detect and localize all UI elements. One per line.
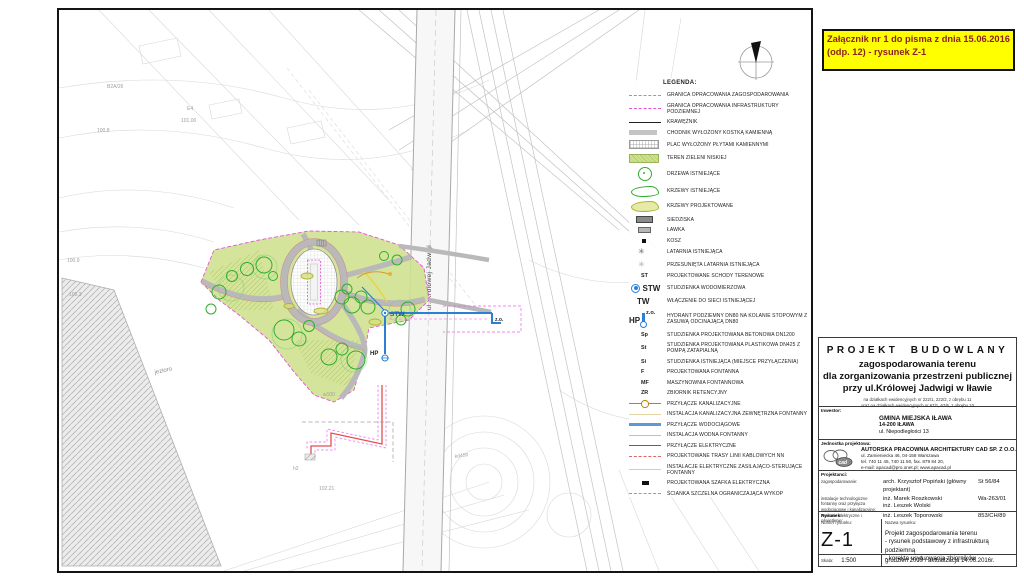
concrete-well-code: Sp	[629, 332, 667, 338]
legend-item: STPROJEKTOWANE SCHODY TERENOWE	[629, 273, 811, 279]
scale-value: 1:500	[841, 558, 856, 564]
legend-item: INSTALACJA KANALIZACYJNA ZEWNĘTRZNA FONT…	[629, 411, 811, 417]
designer-license: St 56/84	[978, 479, 1014, 495]
fountain-code: F	[629, 369, 667, 375]
boundary-infrastructure-line-icon	[629, 108, 667, 109]
bench-icon	[629, 227, 667, 233]
svg-text:102.21: 102.21	[319, 486, 335, 492]
project-title-1: zagospodarowania terenu	[819, 359, 1016, 370]
designers-label: Projektanci:	[819, 471, 1016, 478]
legend-item: INSTALACJE ELEKTRYCZNE ZASILAJĄCO-STERUJ…	[629, 464, 811, 476]
legend-item: FPROJEKTOWANA FONTANNA	[629, 369, 811, 375]
lake-label: jezioro	[153, 366, 173, 376]
moved-lamp-icon	[629, 261, 667, 269]
water-meter-well-icon: STW	[629, 284, 667, 293]
drawing-number: Z-1	[821, 529, 879, 552]
machine-room-code: MF	[629, 380, 667, 386]
legend-item: KOSZ	[629, 238, 811, 244]
zo-map-label: z.o.	[495, 317, 504, 323]
legend-item: PROJEKTOWANA SZAFKA ELEKTRYCZNA	[629, 480, 811, 486]
legend-item: KRAWĘŻNIK	[629, 119, 811, 125]
design-office-email: e-mail: apacad@pro.onet.pl; www.apacad.p…	[861, 465, 1016, 471]
legend-item: StSTUDZIENKA PROJEKTOWANA PLASTIKOWA DN4…	[629, 342, 811, 354]
legend-item: TEREN ZIELENI NISKIEJ	[629, 154, 811, 163]
fountain-sewer-line-icon	[629, 414, 667, 415]
title-block: PROJEKT BUDOWLANY zagospodarowania teren…	[818, 337, 1017, 567]
legend-item: PRZESUNIĘTA LATARNIA ISTNIEJĄCA	[629, 261, 811, 269]
north-arrow-icon	[738, 41, 774, 80]
hp-map-label: HP	[370, 351, 378, 357]
legend-item: KRZEWY PROJEKTOWANE	[629, 201, 811, 212]
legend-item: PLAC WYŁOŻONY PŁYTAMI KAMIENNYMI	[629, 140, 811, 149]
drawing-sheet: jezioro ul. Królowej Jadwigi	[57, 8, 813, 573]
investor-name: GMINA MIEJSKA IŁAWA	[879, 415, 1016, 422]
designer-name: arch. Krzysztof Popiński (główny projekt…	[883, 479, 978, 495]
electric-connection-line-icon	[629, 445, 667, 446]
svg-text:B2A/26: B2A/26	[107, 84, 124, 90]
fountain	[308, 260, 321, 304]
designer-row: zagospodarowanie: arch. Krzysztof Popińs…	[819, 478, 1016, 495]
designers-section: Projektanci: zagospodarowanie: arch. Krz…	[818, 470, 1017, 512]
drawing-name-1: Projekt zagospodarowania terenu	[885, 530, 1013, 538]
legend-item: DRZEWA ISTNIEJĄCE	[629, 167, 811, 181]
legend-item: ZRZBIORNIK RETENCYJNY	[629, 390, 811, 396]
apa-cad-logo: cad	[822, 449, 856, 469]
drawing-number-caption: Numer rysunku:	[821, 520, 879, 525]
designer-role: instalacje technologiczne fontanny oraz …	[821, 496, 883, 512]
plastic-well-code: St	[629, 345, 667, 351]
lake-area: jezioro	[62, 278, 221, 566]
retention-tank-code: ZR	[629, 390, 667, 396]
investor-section: Inwestor: GMINA MIEJSKA IŁAWA 14-200 IŁA…	[818, 406, 1017, 440]
stairs-code: ST	[629, 273, 667, 279]
title-section: PROJEKT BUDOWLANY zagospodarowania teren…	[818, 337, 1017, 407]
svg-text:E4: E4	[187, 106, 193, 112]
svg-text:cad: cad	[839, 460, 849, 466]
existing-lamp-icon	[629, 248, 667, 256]
investor-zip: 14-200 IŁAWA	[879, 422, 1016, 429]
svg-text:w100: w100	[323, 392, 335, 398]
boundary-development-line-icon	[629, 95, 667, 96]
legend-item: SpSTUDZIENKA PROJEKTOWANA BETONOWA DN120…	[629, 332, 811, 338]
scale-caption: Skala:	[821, 558, 833, 563]
project-title-3: przy ul.Królowej Jadwigi w Iławie	[819, 383, 1016, 394]
attachment-note-line2: (odp. 12) - rysunek Z-1	[827, 46, 1010, 59]
drawing-name-2: - rysunek podstawowy z infrastrukturą po…	[885, 538, 1013, 555]
network-tap-code: TW	[629, 297, 667, 306]
existing-tree-icon	[629, 167, 667, 181]
stw-map-label: STW	[390, 311, 405, 318]
sewer-connection-line-icon	[629, 403, 667, 404]
curb-line-icon	[629, 122, 667, 123]
project-type: PROJEKT BUDOWLANY	[819, 345, 1016, 356]
drawing-name-caption: Nazwa rysunku:	[885, 520, 1013, 525]
electric-cabinet-icon	[629, 481, 667, 485]
svg-text:100.8: 100.8	[97, 128, 110, 134]
legend-item: CHODNIK WYŁOŻONY KOSTKĄ KAMIENNĄ	[629, 130, 811, 136]
electric-cabinet	[305, 454, 315, 460]
svg-text:kd450: kd450	[454, 452, 469, 460]
existing-shrubs-icon	[629, 186, 667, 197]
legend-item: PRZYŁĄCZE WODOCIĄGOWE	[629, 422, 811, 428]
legend-item: PROJEKTOWANE TRASY LINII KABLOWYCH NN	[629, 453, 811, 459]
designer-role: zagospodarowanie:	[821, 479, 883, 495]
legend-item: HPz.o.HYDRANT PODZIEMNY DN80 NA KOLANIE …	[629, 310, 811, 327]
svg-text:h2: h2	[293, 466, 299, 472]
design-office-section: Jednostka projektowa: cad AUTORSKA PRACO…	[818, 439, 1017, 471]
stone-plaza-icon	[629, 140, 667, 149]
designer-row: instalacje technologiczne fontanny oraz …	[819, 495, 1016, 512]
fountain-electric-line-icon	[629, 469, 667, 470]
seating-icon	[629, 216, 667, 223]
attachment-note: Załącznik nr 1 do pisma z dnia 15.06.201…	[822, 29, 1015, 71]
legend-item: LATARNIA ISTNIEJĄCA	[629, 248, 811, 256]
svg-text:100.9: 100.9	[67, 258, 80, 264]
sheet-pile-line-icon	[629, 493, 667, 494]
design-office-label: Jednostka projektowa:	[819, 440, 1016, 447]
proposed-shrubs-icon	[629, 201, 667, 212]
legend-item: PRZYŁĄCZE ELEKTRYCZNE	[629, 443, 811, 449]
legend-item: TWWŁĄCZENIE DO SIECI ISTNIEJĄCEJ	[629, 297, 811, 306]
project-title-2: dla zorganizowania przestrzeni publiczne…	[819, 371, 1016, 382]
stone-sidewalk-icon	[629, 130, 667, 135]
legend-item: SiSTUDZIENKA ISTNIEJĄCA (MIEJSCE PRZYŁĄC…	[629, 359, 811, 365]
svg-text:100.3: 100.3	[69, 292, 82, 298]
designer-license: Wa-263/01	[978, 496, 1014, 504]
legend-item: KRZEWY ISTNIEJĄCE	[629, 186, 811, 197]
legend-item: GRANICA OPRACOWANIA ZAGOSPODAROWANIA	[629, 92, 811, 98]
low-greenery-icon	[629, 154, 667, 163]
drawing-date: grudzień 2009 / aktualizacja 14.06.2016r…	[882, 558, 1016, 564]
legend: LEGENDA: GRANICA OPRACOWANIA ZAGOSPODARO…	[629, 80, 811, 497]
legend-item: SIEDZISKA	[629, 216, 811, 223]
legend-item: ŚCIANKA SZCZELNA OGRANICZAJĄCA WYKOP	[629, 491, 811, 497]
water-supply-line-icon	[629, 423, 667, 426]
hydrant-icon: HPz.o.	[629, 310, 667, 327]
legend-item: GRANICA OPRACOWANIA INFRASTRUKTURY PODZI…	[629, 103, 811, 115]
designer-name-2: inż. Leszek Wolski	[883, 503, 1014, 511]
legend-item: INSTALACJA WODNA FONTANNY	[629, 432, 811, 438]
fountain-water-line-icon	[629, 435, 667, 436]
legend-item: STWSTUDZIENKA WODOMIERZOWA	[629, 284, 811, 293]
legend-item: ŁAWKA	[629, 227, 811, 233]
designer-name: inż. Marek Roszkowski	[883, 496, 978, 504]
investor-street: ul. Niepodległości 13	[879, 429, 1016, 436]
existing-well-code: Si	[629, 359, 667, 365]
legend-item: PRZYŁĄCZE KANALIZACYJNE	[629, 401, 811, 407]
svg-text:101.00: 101.00	[181, 118, 197, 124]
cable-routes-line-icon	[629, 456, 667, 457]
trash-bin-icon	[629, 239, 667, 243]
attachment-note-line1: Załącznik nr 1 do pisma z dnia 15.06.201…	[827, 33, 1010, 46]
legend-item: MFMASZYNOWNIA FONTANNOWA	[629, 380, 811, 386]
legend-title: LEGENDA:	[663, 80, 811, 86]
